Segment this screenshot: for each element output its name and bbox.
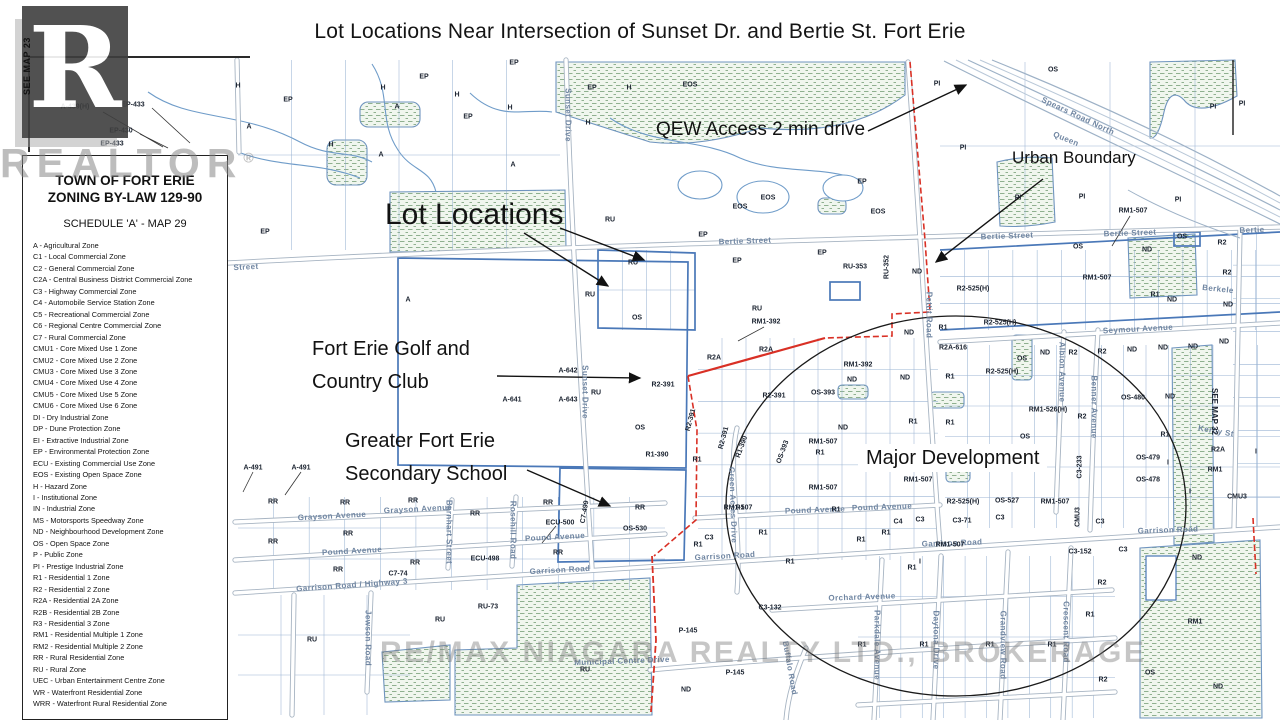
- legend-item: CMU6 - Core Mixed Use 6 Zone: [33, 400, 227, 411]
- street-label: Sunset Drive: [581, 365, 590, 419]
- legend-item: C5 - Recreational Commercial Zone: [33, 309, 227, 320]
- zone-label: OS: [1177, 234, 1187, 241]
- zone-label: A: [405, 297, 410, 304]
- zone-label: P-145: [679, 628, 698, 635]
- zone-label: RM1: [1208, 467, 1223, 474]
- zone-label: H: [454, 92, 459, 99]
- zone-label: I: [1189, 489, 1191, 496]
- street-label: Bertie Street: [980, 231, 1033, 242]
- zone-label: ND: [681, 687, 691, 694]
- zone-label: RM1-526(H): [1029, 407, 1068, 414]
- zone-label: PI: [1079, 194, 1086, 201]
- annotation-secondary-school: Greater Fort ErieSecondary School: [345, 425, 507, 491]
- zone-label: C3: [996, 515, 1005, 522]
- legend-items: A - Agricultural ZoneC1 - Local Commerci…: [33, 240, 227, 710]
- zone-label: RM1-507: [809, 439, 838, 446]
- zone-label: R1: [1086, 612, 1095, 619]
- zone-label: RR: [553, 550, 563, 557]
- legend-item: R2 - Residential 2 Zone: [33, 584, 227, 595]
- zone-label: ND: [1142, 247, 1152, 254]
- zone-label: C3: [1119, 547, 1128, 554]
- zone-label: CMU3: [1075, 507, 1082, 527]
- zone-label: R1: [909, 419, 918, 426]
- zone-label: I: [1167, 460, 1169, 467]
- zone-label: R1: [882, 530, 891, 537]
- zone-label: R2: [1098, 580, 1107, 587]
- zone-label: OS-478: [1136, 477, 1160, 484]
- street-label: Bertie Street: [1103, 228, 1156, 239]
- zone-label: R2-525(H): [957, 286, 990, 293]
- zone-label: EP: [509, 60, 518, 67]
- zone-label: R1: [908, 565, 917, 572]
- legend-subtitle: SCHEDULE 'A' - MAP 29: [23, 218, 227, 230]
- legend-item: ND - Neighbourhood Development Zone: [33, 526, 227, 537]
- legend-item: UEC - Urban Entertainment Centre Zone: [33, 675, 227, 686]
- legend-item: CMU2 - Core Mixed Use 2 Zone: [33, 355, 227, 366]
- zone-label: R2-391: [652, 382, 675, 389]
- zone-label: R2-525(H): [984, 320, 1017, 327]
- zone-label: OS: [1073, 244, 1083, 251]
- legend-item: PI - Prestige Industrial Zone: [33, 561, 227, 572]
- annotation-urban-boundary: Urban Boundary: [1012, 148, 1136, 168]
- zone-label: R2: [1078, 414, 1087, 421]
- zone-label: ND: [847, 377, 857, 384]
- zone-label: R2: [1099, 677, 1108, 684]
- street-label: Bertie: [1239, 225, 1264, 235]
- zone-label: I: [919, 559, 921, 566]
- legend-item: MS - Motorsports Speedway Zone: [33, 515, 227, 526]
- zone-label: R1: [946, 420, 955, 427]
- zone-label: OS: [1020, 434, 1030, 441]
- zone-label: RR: [268, 539, 278, 546]
- legend-item: I - Institutional Zone: [33, 492, 227, 503]
- annotation-lot-locations: Lot Locations: [385, 198, 563, 232]
- zone-label: R2A-616: [939, 345, 967, 352]
- zone-label: RM1-507: [904, 477, 933, 484]
- zone-label: A: [246, 124, 251, 131]
- zone-label: RR: [340, 500, 350, 507]
- zone-label: R1: [759, 530, 768, 537]
- zone-label: ND: [1165, 394, 1175, 401]
- arrow-school: [527, 470, 610, 506]
- street-label: Benner Avenue: [1090, 375, 1099, 438]
- legend-item: IN - Industrial Zone: [33, 503, 227, 514]
- zone-label: H: [328, 142, 333, 149]
- zone-label: R1: [857, 537, 866, 544]
- zone-label: RM1: [1188, 619, 1203, 626]
- legend-item: C7 - Rural Commercial Zone: [33, 332, 227, 343]
- zone-label: A: [378, 152, 383, 159]
- zone-label: PI: [960, 145, 967, 152]
- zone-label: RU: [628, 260, 638, 267]
- zone-label: ND: [1192, 555, 1202, 562]
- zone-label: EP: [283, 97, 292, 104]
- zone-label: C3-132: [759, 605, 782, 612]
- zone-label: OS: [635, 425, 645, 432]
- map-screenshot: Lot Locations Near Intersection of Sunse…: [0, 0, 1280, 720]
- legend-item: RM1 - Residential Multiple 1 Zone: [33, 629, 227, 640]
- legend-item: C1 - Local Commercial Zone: [33, 251, 227, 262]
- zone-label: R1: [816, 450, 825, 457]
- zone-label: H: [626, 85, 631, 92]
- zone-label: C3: [705, 535, 714, 542]
- zone-label: A: [510, 162, 515, 169]
- zone-label: ECU-498: [471, 556, 500, 563]
- zone-label: RR: [635, 505, 645, 512]
- zone-label: ND: [1040, 350, 1050, 357]
- street-label: Albion Avenue: [1058, 342, 1067, 403]
- brokerage-watermark: RE/MAX NIAGARA REALTY LTD., BROKERAGE: [380, 636, 1146, 670]
- zone-label: RM1-507: [1119, 208, 1148, 215]
- street-label: Pettit Road: [925, 292, 934, 339]
- arrow-golf-club: [497, 376, 640, 378]
- legend-item: EI - Extractive Industrial Zone: [33, 435, 227, 446]
- zone-label: EP: [732, 258, 741, 265]
- zone-label: ND: [912, 269, 922, 276]
- zone-label: RM1-507: [936, 542, 965, 549]
- page-title: Lot Locations Near Intersection of Sunse…: [0, 20, 1280, 44]
- legend-item: OS - Open Space Zone: [33, 538, 227, 549]
- zone-label: EP: [857, 179, 866, 186]
- zone-label: A-491: [291, 465, 310, 472]
- zone-label: R2A: [707, 355, 721, 362]
- zone-label: C3: [1096, 519, 1105, 526]
- zone-label: RR: [543, 500, 553, 507]
- legend-item: C6 - Regional Centre Commercial Zone: [33, 320, 227, 331]
- see-map-32-label: SEE MAP 32: [1210, 388, 1219, 435]
- legend-item: CMU3 - Core Mixed Use 3 Zone: [33, 366, 227, 377]
- zone-label: RR: [410, 560, 420, 567]
- zone-label: ND: [1223, 302, 1233, 309]
- annotation-major-development: Major Development: [858, 444, 1047, 472]
- zone-label: RM1-392: [752, 319, 781, 326]
- legend-item: R1 - Residential 1 Zone: [33, 572, 227, 583]
- zone-label: R2: [1098, 349, 1107, 356]
- zone-label: RM1-392: [844, 362, 873, 369]
- zone-label: R2: [1223, 270, 1232, 277]
- zone-label: ND: [1167, 297, 1177, 304]
- zone-label: ND: [1127, 347, 1137, 354]
- zone-label: RU: [752, 306, 762, 313]
- legend-item: ECU - Existing Commercial Use Zone: [33, 458, 227, 469]
- zone-label: R2-525(H): [947, 499, 980, 506]
- zone-label: OS-393: [811, 390, 835, 397]
- zone-label: RM1-507: [809, 485, 838, 492]
- zone-label: RM1-507: [724, 505, 753, 512]
- see-map-23-label: SEE MAP 23: [22, 37, 32, 95]
- zone-label: RM1-507: [1083, 275, 1112, 282]
- zone-label: RU-352: [884, 255, 891, 279]
- zone-label: C3-233: [1077, 456, 1084, 479]
- zone-label: OS-479: [1136, 455, 1160, 462]
- zone-label: EOS: [871, 209, 886, 216]
- zone-label: RU-73: [478, 604, 498, 611]
- zone-label: OS-530: [623, 526, 647, 533]
- street-label: Jewson Road: [364, 610, 373, 666]
- zone-label: R1: [946, 374, 955, 381]
- zone-label: R1: [694, 542, 703, 549]
- zone-label: EP: [463, 114, 472, 121]
- zone-label: OS: [1017, 356, 1027, 363]
- legend-item: RR - Rural Residential Zone: [33, 652, 227, 663]
- zone-label: RU: [605, 217, 615, 224]
- realtor-watermark: REALTOR®: [0, 140, 261, 187]
- street-label: Sunset Drive: [564, 88, 573, 142]
- legend-item: C2A - Central Business District Commerci…: [33, 274, 227, 285]
- zone-label: PI: [1210, 104, 1217, 111]
- zone-label: P-145: [726, 670, 745, 677]
- zone-label: RU-353: [843, 264, 867, 271]
- zone-label: R1: [1161, 432, 1170, 439]
- zone-label: A-491: [243, 465, 262, 472]
- zone-label: OS: [1145, 670, 1155, 677]
- zone-label: I: [1255, 449, 1257, 456]
- zone-label: R2: [1218, 240, 1227, 247]
- zone-label: RU: [435, 617, 445, 624]
- zone-label: R1: [939, 325, 948, 332]
- zone-label: A-642: [558, 368, 577, 375]
- zone-label: RU: [307, 637, 317, 644]
- legend-item: R2B - Residential 2B Zone: [33, 607, 227, 618]
- zone-label: PI: [1239, 101, 1246, 108]
- zone-label: EP: [419, 74, 428, 81]
- zone-label: RR: [333, 567, 343, 574]
- zone-label: PI: [1175, 197, 1182, 204]
- legend-item: C4 - Automobile Service Station Zone: [33, 297, 227, 308]
- zone-label: PI: [934, 81, 941, 88]
- legend-item: CMU1 - Core Mixed Use 1 Zone: [33, 343, 227, 354]
- zone-label: ND: [1158, 345, 1168, 352]
- zone-label: C7-74: [388, 571, 407, 578]
- zone-label: RR: [268, 499, 278, 506]
- zone-label: EP: [817, 250, 826, 257]
- legend-item: A - Agricultural Zone: [33, 240, 227, 251]
- zone-label: EOS: [733, 204, 748, 211]
- zone-label: CMU3: [1227, 494, 1247, 501]
- street-label: Barnhart Street: [445, 500, 454, 564]
- zone-label: H: [507, 105, 512, 112]
- zone-label: EP: [587, 85, 596, 92]
- zone-label: OS: [632, 315, 642, 322]
- zone-label: RM1-507: [1041, 499, 1070, 506]
- zone-label: ND: [904, 330, 914, 337]
- zone-label: R1-390: [646, 452, 669, 459]
- zone-label: R1: [786, 559, 795, 566]
- legend-item: RM2 - Residential Multiple 2 Zone: [33, 641, 227, 652]
- legend-item: EOS - Existing Open Space Zone: [33, 469, 227, 480]
- zone-label: EP: [260, 229, 269, 236]
- annotation-golf-club: Fort Erie Golf andCountry Club: [312, 333, 470, 399]
- zone-label: OS-480: [1121, 395, 1145, 402]
- zone-label: A-641: [502, 397, 521, 404]
- street-label: Street: [233, 262, 259, 272]
- zone-label: H: [380, 85, 385, 92]
- zone-label: RR: [343, 531, 353, 538]
- legend-item: DI - Dry Industrial Zone: [33, 412, 227, 423]
- legend-item: WRR - Waterfront Rural Residential Zone: [33, 698, 227, 709]
- zone-label: C3-152: [1069, 549, 1092, 556]
- zone-label: RU: [591, 390, 601, 397]
- zone-label: A-643: [558, 397, 577, 404]
- legend-item: DP - Dune Protection Zone: [33, 423, 227, 434]
- zone-label: R2A: [1211, 447, 1225, 454]
- legend-item: C2 - General Commercial Zone: [33, 263, 227, 274]
- legend-item: R3 - Residential 3 Zone: [33, 618, 227, 629]
- zone-label: RR: [408, 498, 418, 505]
- annotation-qew-access: QEW Access 2 min drive: [656, 119, 865, 141]
- zone-label: R2-391: [763, 393, 786, 400]
- legend-item: P - Public Zone: [33, 549, 227, 560]
- zone-label: R1: [693, 457, 702, 464]
- zone-label: ND: [1188, 344, 1198, 351]
- zone-label: EP: [698, 232, 707, 239]
- zone-label: ND: [900, 375, 910, 382]
- legend-item: WR - Waterfront Residential Zone: [33, 687, 227, 698]
- legend-item: C3 - Highway Commercial Zone: [33, 286, 227, 297]
- zone-label: C3: [916, 517, 925, 524]
- zone-label: ECU-500: [546, 520, 575, 527]
- zone-label: RU: [585, 292, 595, 299]
- zone-label: EOS: [683, 82, 698, 89]
- zone-label: OS: [1048, 67, 1058, 74]
- zone-label: R1: [1151, 292, 1160, 299]
- zoning-legend: TOWN OF FORT ERIE ZONING BY-LAW 129-90 S…: [22, 155, 228, 720]
- street-label: Rosehill Road: [509, 501, 518, 560]
- zone-label: ND: [838, 425, 848, 432]
- legend-item: CMU4 - Core Mixed Use 4 Zone: [33, 377, 227, 388]
- legend-item: CMU5 - Core Mixed Use 5 Zone: [33, 389, 227, 400]
- zone-label: C3-71: [952, 518, 971, 525]
- zone-label: C4: [894, 519, 903, 526]
- legend-item: H - Hazard Zone: [33, 481, 227, 492]
- zone-label: R2A: [759, 347, 773, 354]
- legend-item: RU - Rural Zone: [33, 664, 227, 675]
- zone-label: ND: [1213, 684, 1223, 691]
- zone-label: R1: [832, 507, 841, 514]
- zone-label: R2-525(H): [986, 369, 1019, 376]
- legend-item: EP - Environmental Protection Zone: [33, 446, 227, 457]
- zone-label: PI: [1015, 195, 1022, 202]
- legend-item: R2A - Residential 2A Zone: [33, 595, 227, 606]
- zone-label: A: [394, 104, 399, 111]
- street-label: Bertie Street: [718, 236, 771, 247]
- zone-label: H: [235, 83, 240, 90]
- zone-label: EOS: [761, 195, 776, 202]
- zone-label: ND: [1219, 339, 1229, 346]
- zone-label: R2: [1069, 350, 1078, 357]
- zone-label: RR: [470, 511, 480, 518]
- zone-label: H: [585, 120, 590, 127]
- zone-label: OS-527: [995, 498, 1019, 505]
